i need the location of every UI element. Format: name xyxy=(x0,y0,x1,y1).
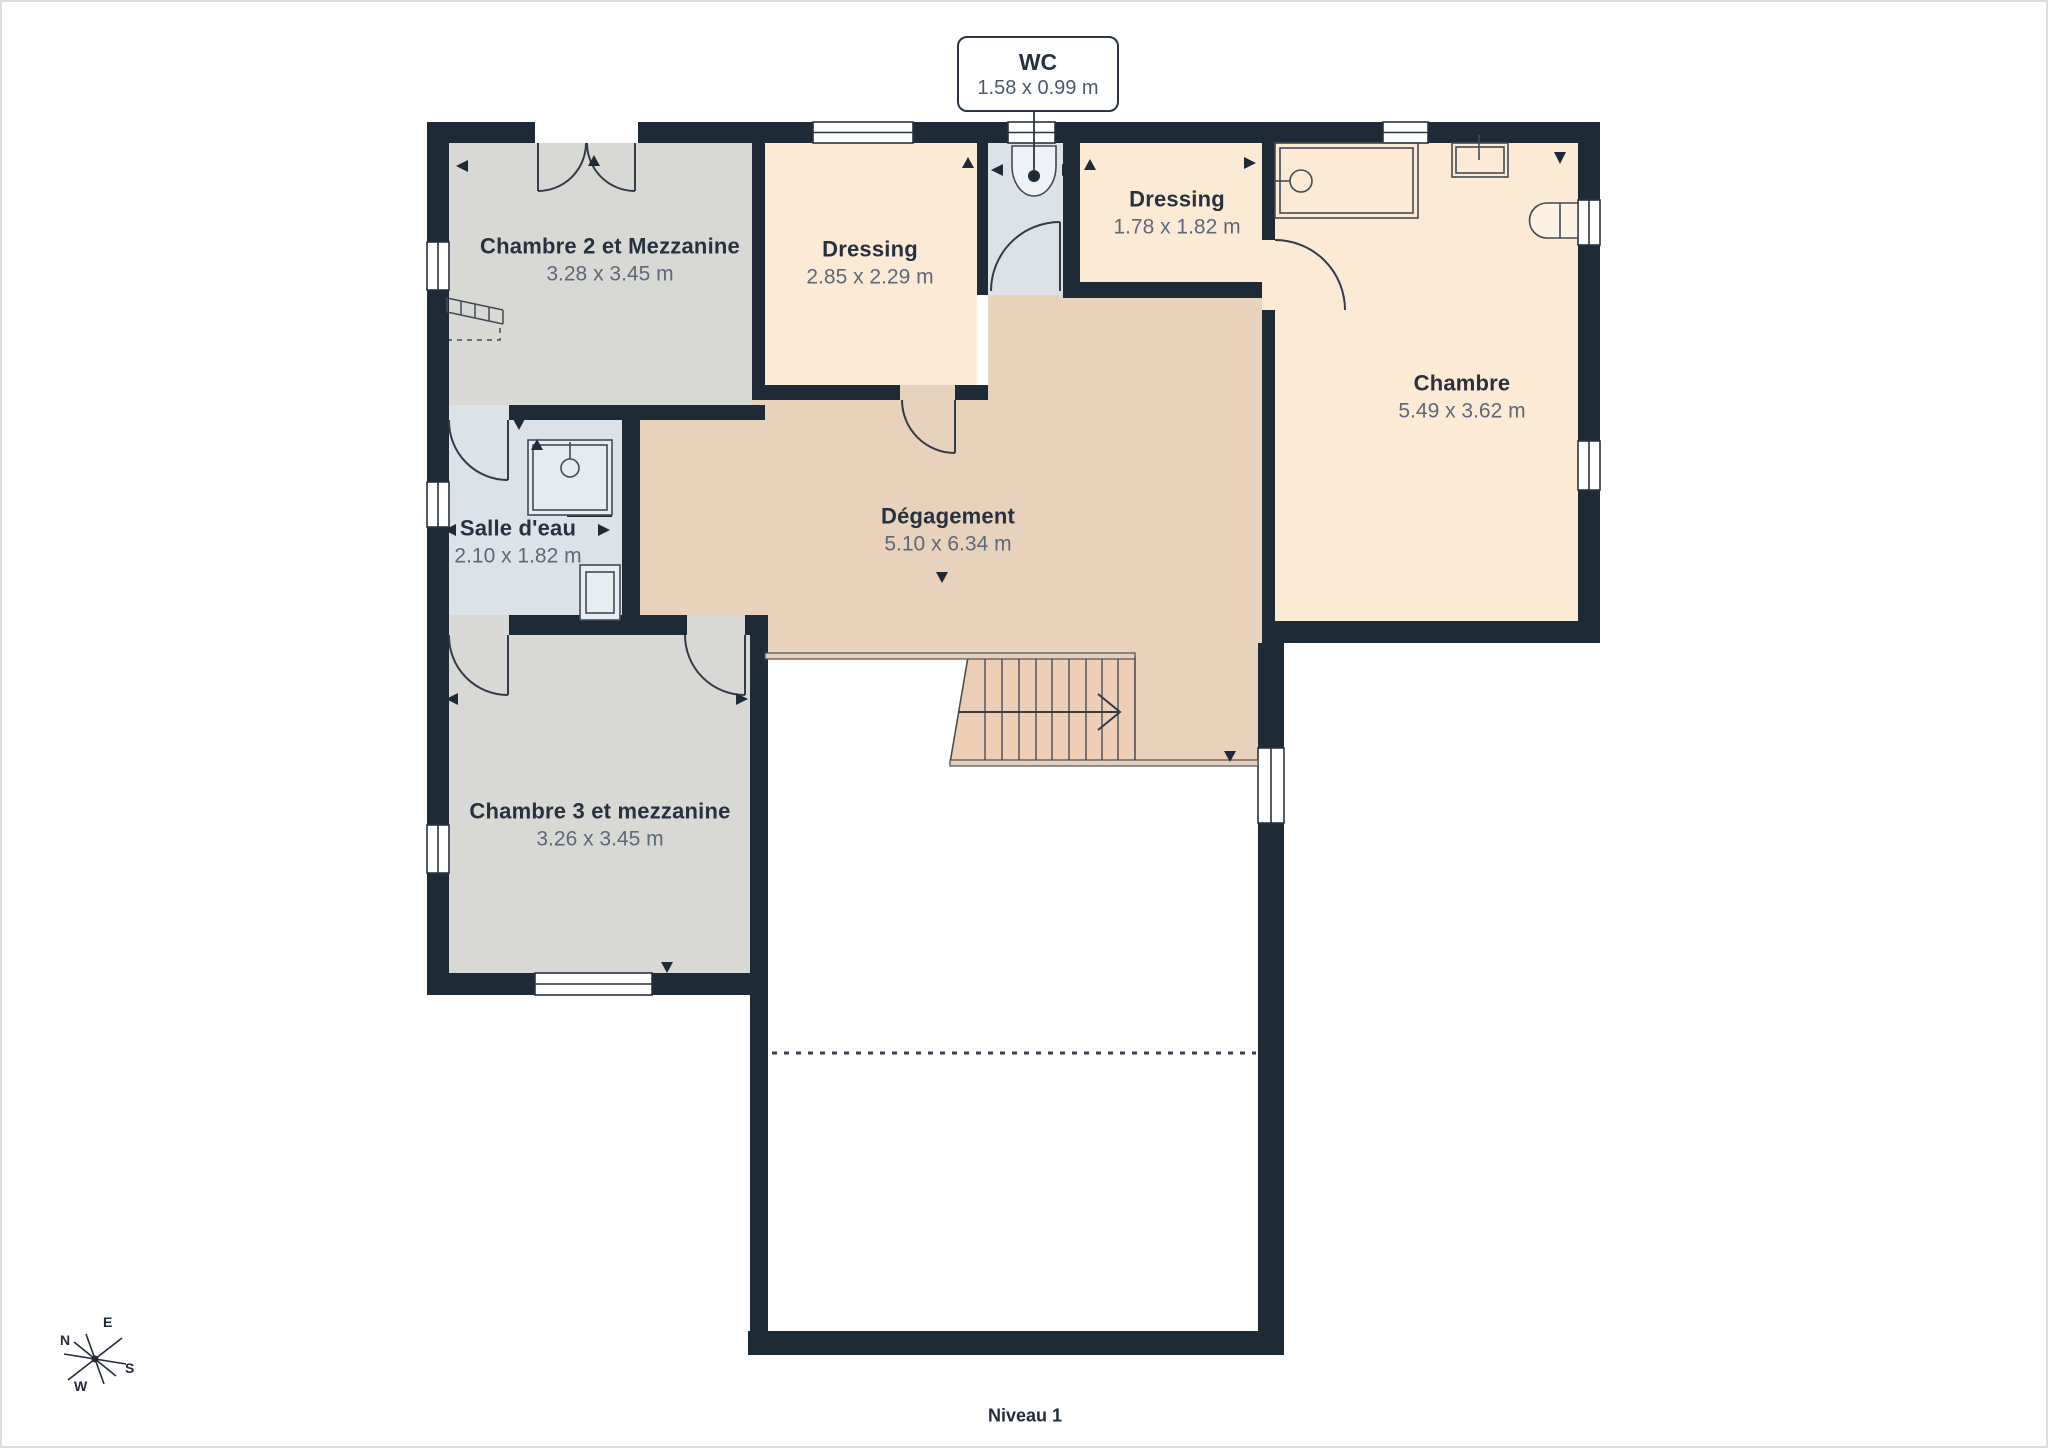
level-label: Niveau 1 xyxy=(988,1406,1062,1427)
compass-star-icon xyxy=(40,1308,150,1408)
window-dressing1-top xyxy=(813,122,913,143)
room-dims: 5.10 x 6.34 m xyxy=(881,533,1015,557)
room-dims: 5.49 x 3.62 m xyxy=(1398,400,1525,424)
landing-edge xyxy=(950,760,1258,766)
window-chambre3-bottom xyxy=(535,973,652,995)
window-salle-deau-left xyxy=(427,482,449,527)
room-name: Salle d'eau xyxy=(454,516,581,542)
room-dims: 2.85 x 2.29 m xyxy=(806,266,933,290)
compass-south: S xyxy=(125,1360,134,1376)
window-wc-top xyxy=(1008,122,1055,143)
room-dims: 2.10 x 1.82 m xyxy=(454,545,581,569)
room-label-degagement: Dégagement 5.10 x 6.34 m xyxy=(881,504,1015,557)
room-dims: 3.26 x 3.45 m xyxy=(469,828,730,852)
room-label-dressing-2: Dressing 1.78 x 1.82 m xyxy=(1113,187,1240,240)
window-chambre-right-2 xyxy=(1578,441,1600,490)
room-name: Dressing xyxy=(1113,187,1240,213)
compass-east: E xyxy=(103,1314,112,1330)
compass-west: W xyxy=(74,1378,87,1394)
room-name: Dégagement xyxy=(881,504,1015,530)
room-label-dressing-1: Dressing 2.85 x 2.29 m xyxy=(806,237,933,290)
water-heater-icon xyxy=(1530,203,1579,238)
room-dims: 3.28 x 3.45 m xyxy=(480,263,740,287)
floor-degagement-landing xyxy=(1135,643,1258,765)
window-chambre2-left xyxy=(427,242,449,290)
room-name: Chambre xyxy=(1398,371,1525,397)
shower-icon xyxy=(528,440,612,515)
sink-icon xyxy=(580,565,620,620)
mezzanine-balustrade xyxy=(765,653,1135,659)
window-void-right xyxy=(1258,748,1284,823)
room-label-chambre-3: Chambre 3 et mezzanine 3.26 x 3.45 m xyxy=(469,799,730,852)
floor-degagement-east xyxy=(1063,298,1262,657)
floor-plan-canvas: WC 1.58 x 0.99 m Chambre 2 et Mezzanine … xyxy=(0,0,2048,1448)
room-name: Chambre 2 et Mezzanine xyxy=(480,234,740,260)
window-chambre-top xyxy=(1383,122,1428,143)
floor-degagement-corridor xyxy=(640,420,752,615)
room-label-chambre: Chambre 5.49 x 3.62 m xyxy=(1398,371,1525,424)
compass-rose: N E S W xyxy=(40,1308,150,1408)
room-label-salle-deau: Salle d'eau 2.10 x 1.82 m xyxy=(454,516,581,569)
room-label-chambre-2: Chambre 2 et Mezzanine 3.28 x 3.45 m xyxy=(480,234,740,287)
toilet-icon xyxy=(1012,108,1056,196)
floor-plan-drawing xyxy=(0,0,2048,1448)
wc-callout: WC 1.58 x 0.99 m xyxy=(957,36,1119,112)
wc-callout-dims: 1.58 x 0.99 m xyxy=(977,77,1098,100)
window-chambre3-left xyxy=(427,825,449,873)
compass-north: N xyxy=(60,1332,70,1348)
room-name: Chambre 3 et mezzanine xyxy=(469,799,730,825)
wc-callout-name: WC xyxy=(1019,49,1057,76)
floor-degagement-center xyxy=(988,295,1063,657)
window-chambre-right-1 xyxy=(1578,200,1600,245)
room-dims: 1.78 x 1.82 m xyxy=(1113,216,1240,240)
room-name: Dressing xyxy=(806,237,933,263)
